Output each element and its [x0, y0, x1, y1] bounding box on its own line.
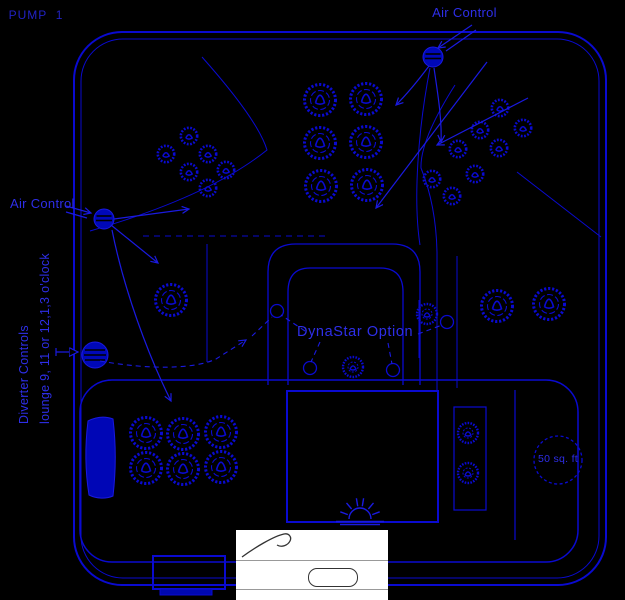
diagram-canvas: [0, 0, 625, 600]
pill-outline: [308, 568, 358, 587]
diverter-dashed-leaders: [100, 315, 442, 367]
jet: [306, 171, 337, 202]
jet: [168, 419, 199, 450]
jet: [218, 162, 234, 178]
jet-lounge-foot: [343, 357, 363, 377]
jet-lounge: [156, 285, 187, 316]
jet: [131, 453, 162, 484]
jet: [458, 463, 478, 483]
jet: [515, 120, 531, 136]
dynastar-option-label: DynaStar Option: [297, 324, 413, 340]
filter-size-label: 50 sq. ft: [529, 453, 587, 465]
jet: [158, 146, 174, 162]
jet-pair-right-middle: [482, 289, 565, 322]
jet: [200, 146, 216, 162]
seat-contours: [90, 57, 601, 390]
air-control-knob-top: [423, 47, 443, 67]
jet: [352, 170, 383, 201]
spa-plumbing-diagram: Air Control Air Control Diverter Control…: [0, 0, 625, 600]
jet-cluster-top-center: [305, 84, 383, 202]
jet: [444, 188, 460, 204]
diverter-control-knob: [82, 342, 108, 368]
jet: [534, 289, 565, 320]
jet: [424, 171, 440, 187]
air-control-label-left: Air Control: [10, 196, 75, 211]
tub-shell-outline: [74, 32, 606, 585]
headrest-pillow: [86, 417, 115, 498]
diverter-controls-label: Diverter Controls lounge 9, 11 or 12,1,3…: [14, 246, 60, 424]
jet: [458, 423, 478, 443]
overlay-box: [236, 530, 388, 600]
jet: [467, 166, 483, 182]
jet: [200, 180, 216, 196]
air-control-knob-left: [94, 209, 114, 229]
jet-pair-bottom-right: [458, 423, 478, 483]
spa-light-icon: [336, 498, 384, 524]
jet: [351, 84, 382, 115]
jet: [168, 454, 199, 485]
jet: [305, 128, 336, 159]
overlay-squiggle-canvas: [236, 530, 388, 600]
jet: [131, 418, 162, 449]
jet: [305, 85, 336, 116]
air-control-label-top: Air Control: [412, 5, 517, 20]
jet: [450, 141, 466, 157]
jet: [482, 291, 513, 322]
jet: [206, 417, 237, 448]
jet: [181, 164, 197, 180]
pen-squiggle: [242, 534, 291, 557]
lounge-outline: [268, 244, 420, 385]
jet: [351, 127, 382, 158]
seat-jet-panel: [454, 407, 486, 510]
jet: [181, 128, 197, 144]
jet: [472, 122, 488, 138]
pump1-tab: [160, 589, 212, 595]
diverter-label-line1: Diverter Controls: [14, 246, 35, 424]
jet-cluster-left: [158, 128, 234, 196]
jet: [492, 100, 508, 116]
diverter-label-line2: lounge 9, 11 or 12,1,3 o'clock: [35, 246, 56, 424]
jet-cluster-bottom-bench: [131, 417, 237, 485]
jet: [491, 140, 507, 156]
jet: [206, 452, 237, 483]
